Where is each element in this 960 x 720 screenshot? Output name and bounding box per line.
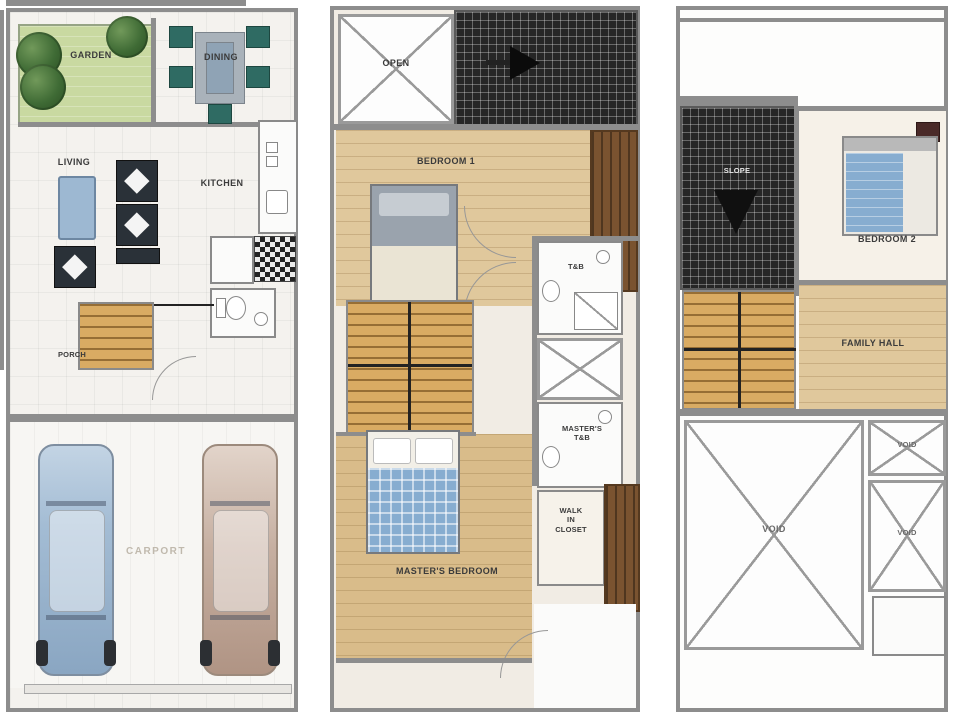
stair-railing <box>154 304 214 306</box>
stair-landing-line <box>348 364 472 367</box>
tb-label: T&B <box>556 262 596 271</box>
sofa-icon <box>58 176 96 240</box>
wall <box>680 96 798 106</box>
stairs-icon <box>78 302 154 370</box>
pillow <box>373 438 411 464</box>
stair-landing-line <box>684 348 796 351</box>
door-arc <box>152 356 196 400</box>
wall <box>18 122 296 127</box>
bedroom1-label: BEDROOM 1 <box>386 156 506 167</box>
kitchen-counter <box>258 120 298 234</box>
floor-plan-image: GARDEN DINING LIVING KITCHEN <box>0 0 960 720</box>
masters-bedroom-label: MASTER'S BEDROOM <box>352 566 542 577</box>
bench-icon <box>116 248 160 264</box>
dining-label: DINING <box>194 52 248 63</box>
armchair-icon <box>116 204 158 246</box>
toilet-icon <box>542 280 560 302</box>
coffee-table-icon <box>54 246 96 288</box>
carport-label: CARPORT <box>114 546 198 559</box>
ground-floor-plan: GARDEN DINING LIVING KITCHEN <box>6 8 298 712</box>
car-icon <box>202 444 278 676</box>
headboard <box>844 138 936 151</box>
arrow-right-icon <box>510 46 540 80</box>
stair-void-box <box>537 338 623 400</box>
toilet-icon <box>542 446 560 468</box>
pillow <box>379 193 450 216</box>
wall <box>151 18 156 126</box>
dining-chair-icon <box>169 66 193 88</box>
arrow-tail <box>486 60 512 65</box>
sink-icon <box>266 156 278 167</box>
closet-strip <box>604 484 640 612</box>
slope-label: SLOPE <box>702 166 772 175</box>
masters-tb-label: MASTER'S T&B <box>558 424 606 443</box>
bed-icon <box>370 184 458 304</box>
dining-chair-icon <box>246 26 270 48</box>
bed-icon <box>366 430 460 554</box>
car-icon <box>38 444 114 676</box>
family-hall-label: FAMILY HALL <box>818 338 928 349</box>
walk-in-closet-label: WALK IN CLOSET <box>546 506 596 534</box>
stair-railing <box>408 302 411 432</box>
wall <box>336 658 532 663</box>
roof-deck <box>454 10 638 126</box>
wall <box>0 10 4 370</box>
open-label: OPEN <box>364 58 428 69</box>
bedroom2-label: BEDROOM 2 <box>832 234 942 245</box>
blanket <box>846 153 903 232</box>
room-walk-in-closet <box>537 490 605 586</box>
hall-area <box>534 604 636 708</box>
sink-icon <box>596 250 610 264</box>
kitchen-label: KITCHEN <box>190 178 254 189</box>
second-floor-plan: OPEN BEDROOM 1 T&B MASTER'S T&B WALK <box>330 6 640 712</box>
dining-chair-icon <box>208 104 232 124</box>
dining-chair-icon <box>246 66 270 88</box>
toilet-tank <box>216 298 226 318</box>
garden-label: GARDEN <box>56 50 126 61</box>
void-main-label: VOID <box>746 524 802 535</box>
kitchen-appliance <box>254 236 296 282</box>
gate <box>24 684 292 694</box>
pillow <box>415 438 453 464</box>
sink-icon <box>266 142 278 153</box>
toilet-icon <box>226 296 246 320</box>
porch-label: PORCH <box>40 350 104 359</box>
wall <box>680 18 946 22</box>
wall <box>680 409 946 416</box>
wall <box>6 0 246 6</box>
shower-icon <box>574 292 618 330</box>
dining-table-runner <box>206 42 234 94</box>
sink-icon <box>598 410 612 424</box>
wall <box>10 414 294 422</box>
living-label: LIVING <box>46 157 102 168</box>
void-top-label: VOID <box>884 440 930 449</box>
third-floor-plan: SLOPE BEDROOM 2 FAMILY HALL VOID VOID VO… <box>676 6 948 712</box>
bed-icon <box>842 136 938 236</box>
kitchen-island <box>210 236 254 284</box>
armchair-icon <box>116 160 158 202</box>
stove-icon <box>266 190 288 214</box>
arrow-down-icon <box>714 190 758 234</box>
small-room <box>872 596 946 656</box>
tree-icon <box>20 64 66 110</box>
void-mid-label: VOID <box>884 528 930 537</box>
dining-chair-icon <box>169 26 193 48</box>
plaid-blanket <box>368 468 458 552</box>
sink-icon <box>254 312 268 326</box>
